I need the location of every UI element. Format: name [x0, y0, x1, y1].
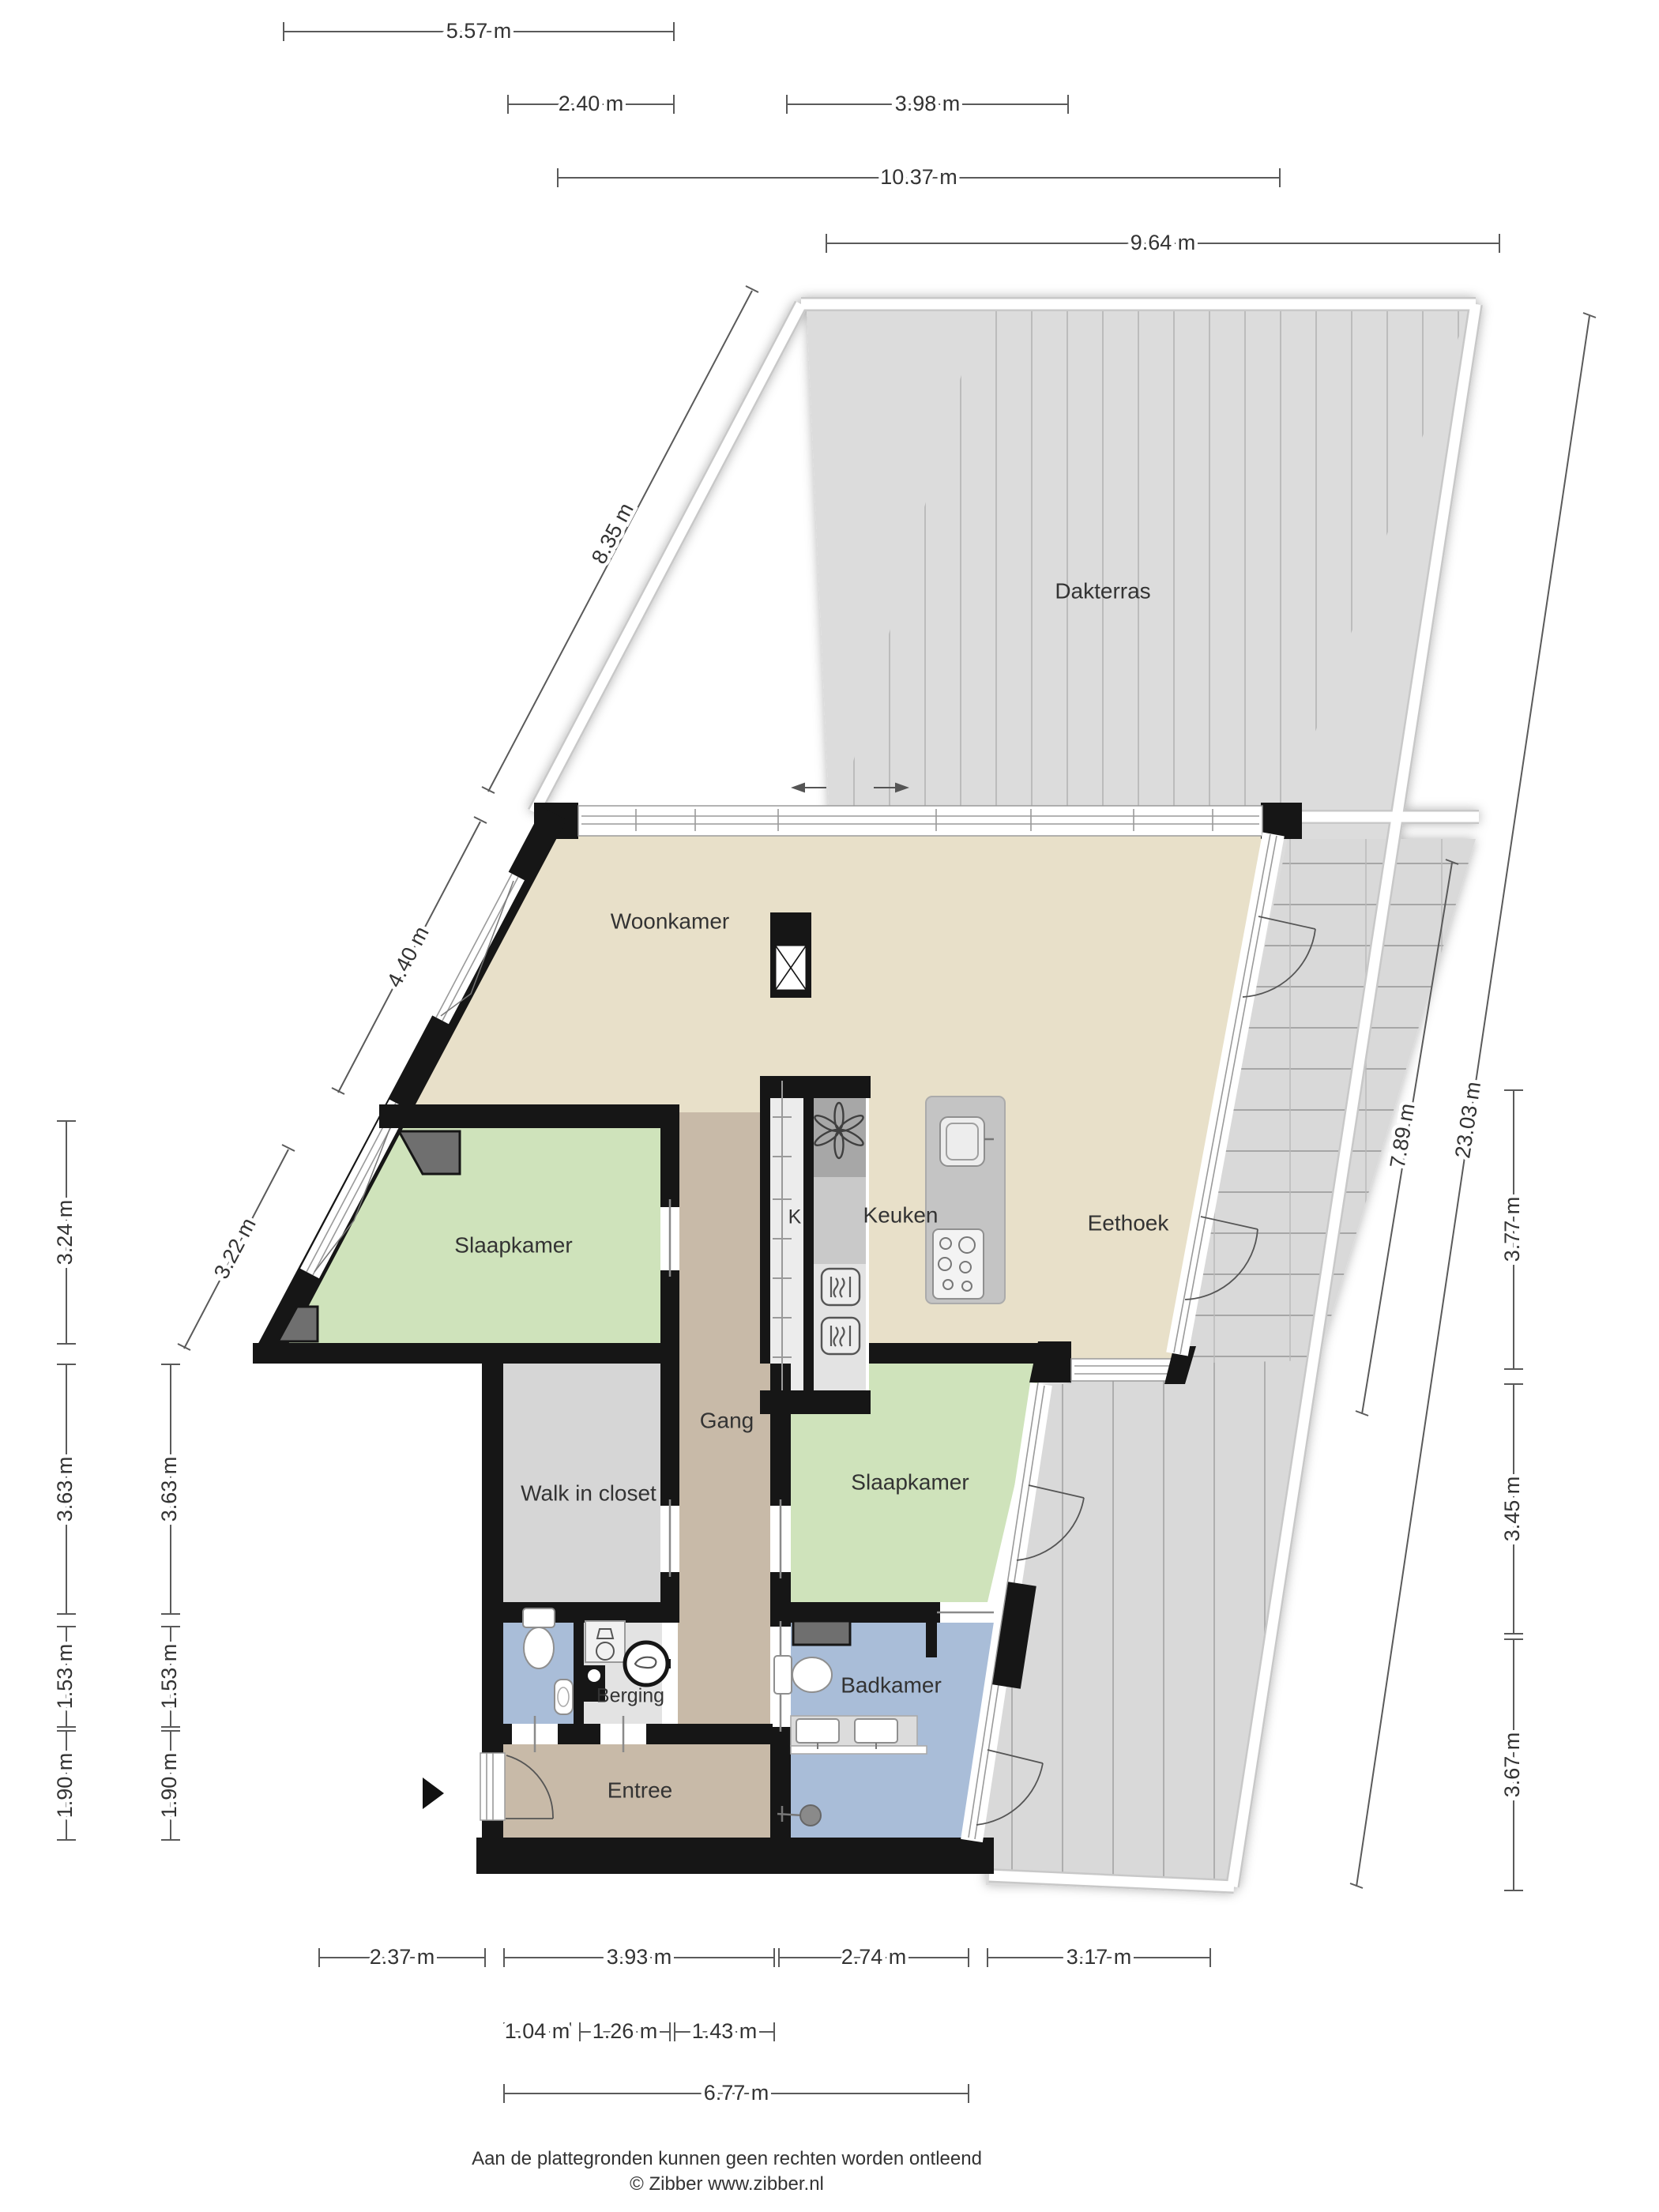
- dim-top-2: 3.98 m: [895, 92, 961, 115]
- washing-machine: [585, 1621, 625, 1662]
- dim-right-1: 23.03 m: [1450, 1080, 1485, 1160]
- room-label-dakterras: Dakterras: [1055, 578, 1150, 603]
- dim-left-inner-0: 3.63 m: [157, 1457, 181, 1522]
- room-label-walkincloset: Walk in closet: [521, 1480, 656, 1505]
- dim-left-outer-3: 1.90 m: [53, 1753, 77, 1819]
- dim-bottom1-1: 3.93 m: [607, 1945, 672, 1969]
- dim-diag-2: 3.22 m: [209, 1214, 261, 1283]
- dim-diag-1: 4.40 m: [382, 923, 434, 991]
- kitchen-island: [926, 1097, 1005, 1303]
- window-eethoek-south: [1071, 1359, 1174, 1381]
- dim-top-1: 2.40 m: [559, 92, 624, 115]
- footer-copyright: © Zibber www.zibber.nl: [630, 2173, 824, 2195]
- dim-top-4: 9.64 m: [1130, 231, 1196, 254]
- room-label-badkamer: Badkamer: [841, 1672, 942, 1697]
- footer-disclaimer: Aan de plattegronden kunnen geen rechten…: [472, 2148, 982, 2169]
- washbasin-toilet: [555, 1680, 573, 1714]
- dim-diag-0: 8.35 m: [587, 499, 638, 568]
- dim-bottom1-3: 3.17 m: [1066, 1945, 1132, 1969]
- dim-left-inner-2: 1.90 m: [157, 1753, 181, 1819]
- dim-top-3: 10.37 m: [880, 165, 957, 189]
- toilet-1: [523, 1608, 555, 1668]
- dim-left-inner-1: 1.53 m: [157, 1644, 181, 1710]
- boiler: [623, 1642, 671, 1685]
- dim-right-2: 3.77 m: [1500, 1197, 1524, 1262]
- dim-left-outer-2: 1.53 m: [53, 1644, 77, 1710]
- room-label-keuken: Keuken: [863, 1202, 939, 1227]
- dim-bottom3-0: 6.77 m: [704, 2081, 769, 2105]
- bathroom-counter: [791, 1716, 927, 1754]
- room-label-kast: K: [788, 1206, 802, 1228]
- room-label-woonkamer: Woonkamer: [611, 908, 729, 933]
- dim-bottom1-0: 2.37 m: [370, 1945, 435, 1969]
- room-label-entree: Entree: [608, 1777, 673, 1802]
- bathroom-cabinet-bar: [793, 1621, 850, 1645]
- dim-bottom2-2: 1.43 m: [692, 2019, 758, 2043]
- dim-bottom1-2: 2.74 m: [841, 1945, 907, 1969]
- dim-left-outer-0: 3.24 m: [53, 1200, 77, 1266]
- floorplan-canvas: Dakterras Woonkamer Keuken Eethoek K Sla…: [0, 0, 1659, 2212]
- dim-right-4: 3.67 m: [1500, 1732, 1524, 1798]
- dim-bottom2-0: 1.04 m: [505, 2019, 570, 2043]
- room-label-slaapkamer2: Slaapkamer: [851, 1469, 969, 1494]
- dim-right-3: 3.45 m: [1500, 1477, 1524, 1542]
- dim-top-0: 5.57 m: [446, 19, 512, 43]
- room-label-berging: Berging: [596, 1685, 664, 1707]
- window-band-top: [578, 806, 1262, 836]
- room-label-slaapkamer1: Slaapkamer: [454, 1232, 572, 1257]
- entrance-arrow-icon: [423, 1777, 444, 1809]
- column-flue: [770, 912, 811, 998]
- room-label-eethoek: Eethoek: [1088, 1210, 1170, 1235]
- room-label-gang: Gang: [700, 1408, 754, 1432]
- dim-bottom2-1: 1.26 m: [592, 2019, 658, 2043]
- dim-left-outer-1: 3.63 m: [53, 1457, 77, 1522]
- toilet-2: [774, 1656, 832, 1694]
